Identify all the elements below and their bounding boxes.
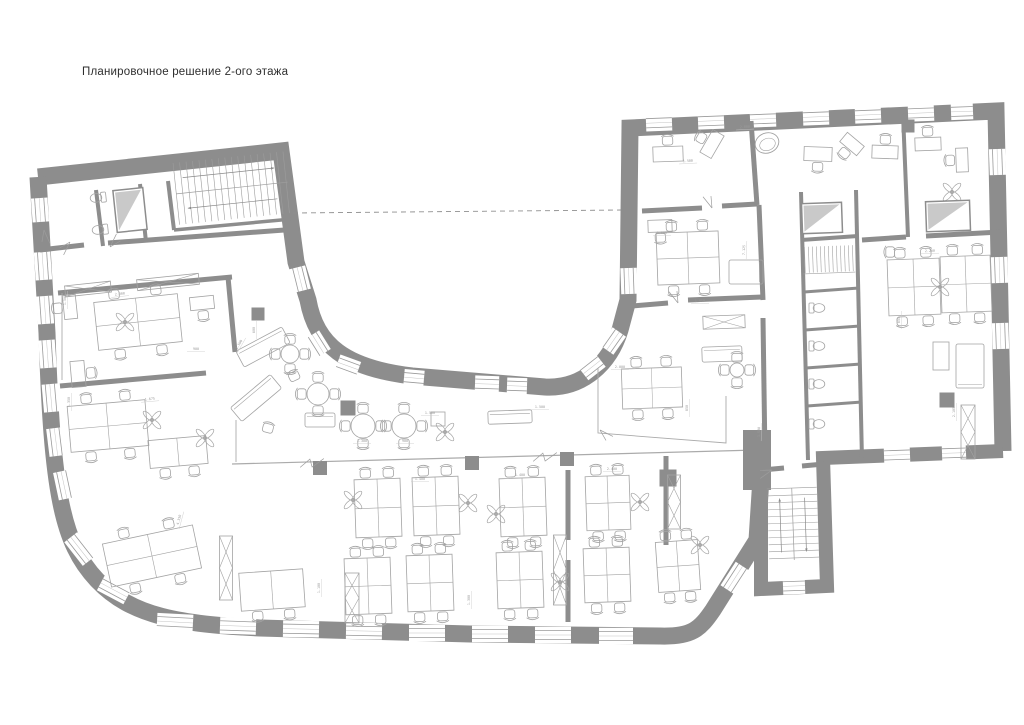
chair-symbol bbox=[269, 348, 280, 360]
chair-symbol bbox=[116, 526, 130, 539]
window-symbol bbox=[620, 268, 637, 295]
column-symbol bbox=[902, 120, 915, 133]
chair-symbol bbox=[161, 517, 175, 530]
chair-symbol bbox=[922, 316, 935, 327]
column-symbol bbox=[560, 452, 574, 466]
chair-symbol bbox=[613, 603, 626, 614]
chair-symbol bbox=[589, 464, 602, 475]
partition-wall bbox=[802, 464, 824, 466]
door-symbol bbox=[600, 426, 613, 440]
dimension-label: 1.500 bbox=[63, 295, 67, 305]
desk-symbol bbox=[189, 295, 215, 322]
site-boundary-layer bbox=[293, 210, 621, 213]
chair-symbol bbox=[503, 610, 516, 621]
pod2-symbol bbox=[239, 569, 306, 623]
chair-symbol bbox=[79, 392, 92, 404]
rect-symbol bbox=[933, 342, 949, 370]
chair-symbol bbox=[372, 545, 385, 556]
chair-symbol bbox=[442, 536, 455, 547]
glass-partition bbox=[598, 368, 726, 443]
chair-symbol bbox=[419, 537, 432, 548]
chair-symbol bbox=[745, 364, 756, 376]
partition-wall bbox=[801, 236, 858, 240]
stairv-symbol bbox=[767, 487, 819, 561]
window-symbol bbox=[992, 323, 1009, 350]
dimension-label: 1.350 bbox=[67, 397, 71, 407]
chair-symbol bbox=[339, 420, 350, 432]
pod4-symbol bbox=[406, 542, 455, 624]
window-symbol bbox=[855, 106, 882, 123]
rtable-symbol bbox=[269, 333, 310, 374]
chair-symbol bbox=[300, 348, 311, 360]
chair-symbol bbox=[698, 285, 711, 296]
pod4-symbol bbox=[92, 282, 183, 363]
window-symbol bbox=[46, 427, 66, 457]
partition-wall bbox=[926, 232, 1000, 236]
window-symbol bbox=[31, 197, 49, 222]
column-symbol bbox=[743, 430, 771, 490]
dimension-label: 1.300 bbox=[467, 595, 471, 605]
hatch-symbol bbox=[802, 245, 855, 274]
window-symbol bbox=[991, 257, 1008, 284]
drawing-title: Планировочное решение 2-ого этажа bbox=[82, 66, 288, 78]
chair-symbol bbox=[811, 162, 824, 173]
pod4-symbol bbox=[583, 535, 632, 615]
desk-symbol bbox=[914, 125, 941, 151]
window-symbol bbox=[599, 628, 633, 644]
window-symbol bbox=[157, 613, 194, 631]
mtable-symbol bbox=[621, 355, 683, 421]
plant-symbol bbox=[458, 493, 478, 513]
sofa-symbol bbox=[305, 413, 335, 427]
toilet-symbol bbox=[809, 341, 825, 351]
desk-symbol bbox=[803, 147, 832, 174]
dimension-label: 600 bbox=[252, 327, 256, 333]
sofa-symbol bbox=[488, 410, 532, 425]
site-boundary-dashed-line bbox=[293, 210, 621, 213]
wall-segment bbox=[761, 451, 1003, 589]
partition-wall bbox=[804, 288, 859, 292]
chair-symbol bbox=[731, 378, 743, 389]
dimension-label: 900 bbox=[402, 439, 408, 443]
chair-symbol bbox=[173, 573, 187, 586]
sofa-symbol bbox=[236, 327, 290, 367]
chair-symbol bbox=[611, 535, 624, 546]
chair-symbol bbox=[295, 388, 306, 400]
sofa-symbol bbox=[729, 260, 763, 284]
chair-symbol bbox=[661, 134, 674, 145]
chair-symbol bbox=[118, 389, 131, 401]
column-symbol bbox=[660, 470, 677, 487]
door-symbol bbox=[669, 291, 678, 304]
chair-symbol bbox=[662, 409, 675, 420]
chair-symbol bbox=[971, 243, 984, 254]
chair-symbol bbox=[973, 313, 986, 324]
pod4-symbol bbox=[496, 539, 545, 621]
window-symbol bbox=[803, 108, 830, 125]
plant-symbol bbox=[142, 410, 162, 430]
chair-symbol bbox=[312, 406, 324, 417]
chair-symbol bbox=[948, 314, 961, 325]
chair-symbol bbox=[921, 125, 934, 136]
dimension-label: 2.000 bbox=[115, 291, 126, 296]
chair-symbol bbox=[632, 410, 645, 421]
chair-symbol bbox=[283, 609, 296, 621]
dimension-label: 2.400 bbox=[607, 467, 617, 471]
column-symbol bbox=[313, 461, 327, 475]
window-symbol bbox=[283, 620, 319, 637]
plant-symbol bbox=[195, 428, 215, 448]
desk-symbol bbox=[832, 132, 864, 165]
column-symbol bbox=[252, 308, 265, 321]
chair-symbol bbox=[155, 344, 168, 356]
sofa-symbol bbox=[956, 344, 984, 388]
window-symbol bbox=[535, 627, 571, 643]
dimension-label: 850 bbox=[685, 405, 689, 411]
chair-symbol bbox=[417, 465, 430, 476]
chair-symbol bbox=[359, 467, 372, 478]
dimension-label: 1.500 bbox=[657, 231, 667, 235]
dimension-label: 2.280 bbox=[925, 249, 935, 253]
pod4-symbol bbox=[344, 545, 393, 627]
window-symbol bbox=[884, 446, 911, 463]
sofa-symbol bbox=[230, 374, 281, 421]
dimension-label: 2.000 bbox=[740, 125, 750, 130]
chair-symbol bbox=[944, 154, 955, 167]
pod4-symbol bbox=[654, 528, 701, 605]
partition-wall bbox=[60, 373, 206, 386]
toilet-symbol bbox=[809, 379, 825, 389]
dimension-label: 655 bbox=[897, 317, 901, 323]
chair-symbol bbox=[384, 538, 397, 549]
rtable-symbol bbox=[295, 371, 340, 416]
window-symbol bbox=[403, 369, 424, 387]
partition-wall bbox=[722, 204, 757, 206]
chair-symbol bbox=[330, 388, 341, 400]
chair-symbol bbox=[527, 465, 540, 476]
toilet-symbol bbox=[809, 419, 825, 429]
window-symbol bbox=[220, 617, 257, 635]
dimension-label: 1.500 bbox=[535, 405, 545, 409]
chair-symbol bbox=[85, 451, 98, 463]
desk-symbol bbox=[872, 133, 899, 159]
partition-wall bbox=[751, 121, 757, 205]
chair-symbol bbox=[434, 542, 447, 553]
xcab-symbol bbox=[220, 536, 233, 600]
chair-symbol bbox=[398, 402, 410, 413]
dimension-label: 7.125 bbox=[742, 245, 746, 255]
chair-symbol bbox=[286, 368, 302, 383]
partition-wall bbox=[805, 326, 860, 330]
pod4-symbol bbox=[100, 513, 204, 599]
dimension-label: 2.105 bbox=[952, 407, 956, 417]
chair-symbol bbox=[261, 421, 276, 435]
chair-symbol bbox=[590, 604, 603, 615]
xcab-symbol bbox=[554, 535, 567, 605]
bean-symbol bbox=[752, 129, 781, 156]
sofa-symbol bbox=[702, 346, 742, 362]
plant-symbol bbox=[343, 490, 363, 510]
chair-symbol bbox=[357, 402, 369, 413]
partition-wall bbox=[168, 181, 174, 230]
partition-wall bbox=[807, 402, 862, 406]
chair-symbol bbox=[188, 466, 201, 478]
window-symbol bbox=[951, 103, 974, 120]
dimension-label: 2.000 bbox=[615, 365, 625, 369]
shaft-symbol bbox=[113, 188, 147, 233]
plant-symbol bbox=[630, 492, 650, 512]
xcab-symbol bbox=[703, 315, 745, 329]
column-symbol bbox=[940, 393, 955, 408]
partition-wall bbox=[806, 364, 861, 368]
window-symbol bbox=[289, 265, 311, 292]
window-symbol bbox=[42, 383, 61, 412]
dimension-label: 1.500 bbox=[683, 159, 693, 164]
dimension-label: 900 bbox=[193, 347, 199, 351]
chair-symbol bbox=[879, 133, 892, 144]
chair-symbol bbox=[696, 219, 709, 230]
pod4-symbol bbox=[354, 466, 403, 550]
dimension-label: 1.400 bbox=[515, 473, 525, 477]
plant-symbol bbox=[690, 535, 710, 555]
chair-symbol bbox=[128, 582, 142, 595]
rtable-symbol bbox=[718, 351, 755, 388]
dimension-label: 1.500 bbox=[757, 427, 761, 437]
chair-symbol bbox=[349, 546, 362, 557]
chair-symbol bbox=[614, 531, 627, 542]
chair-symbol bbox=[261, 421, 276, 435]
partition-wall bbox=[862, 237, 906, 240]
column-symbol bbox=[465, 456, 479, 470]
chair-symbol bbox=[159, 468, 172, 480]
partition-wall bbox=[759, 205, 763, 300]
window-symbol bbox=[783, 577, 806, 594]
zdoor-symbol bbox=[533, 453, 557, 462]
pod2-symbol bbox=[148, 436, 209, 481]
window-symbol bbox=[989, 149, 1006, 176]
floorplan-drawing: 1.5002.0009001.3501.6751.5006001.3009001… bbox=[0, 0, 1024, 725]
pod4-symbol bbox=[66, 388, 150, 465]
dimension-label: 1.500 bbox=[425, 411, 435, 415]
partitions-layer bbox=[40, 114, 1000, 622]
chair-symbol bbox=[286, 368, 302, 383]
chair-symbol bbox=[86, 366, 98, 379]
window-symbol bbox=[38, 339, 56, 368]
chair-symbol bbox=[718, 364, 729, 376]
partition-wall bbox=[642, 208, 702, 211]
chair-symbol bbox=[382, 466, 395, 477]
window-symbol bbox=[698, 112, 725, 129]
plant-symbol bbox=[942, 182, 962, 202]
column-symbol bbox=[341, 401, 356, 416]
chair-symbol bbox=[123, 448, 136, 460]
pod4-symbol bbox=[940, 243, 993, 325]
shaft-symbol bbox=[925, 200, 970, 232]
shaft-symbol bbox=[801, 202, 842, 233]
chair-symbol bbox=[526, 609, 539, 620]
dimension-label: 4.350 bbox=[176, 514, 183, 525]
window-symbol bbox=[507, 377, 528, 394]
chair-symbol bbox=[684, 591, 697, 603]
chair-symbol bbox=[660, 355, 673, 366]
window-symbol bbox=[908, 104, 935, 121]
dimension-label: 1.675 bbox=[145, 397, 156, 402]
chair-symbol bbox=[893, 247, 906, 258]
chair-symbol bbox=[197, 310, 210, 322]
chair-symbol bbox=[667, 286, 680, 297]
pod4-symbol bbox=[585, 463, 632, 543]
chair-symbol bbox=[836, 146, 852, 162]
chair-symbol bbox=[440, 464, 453, 475]
dimension-label: 1.100 bbox=[317, 583, 321, 593]
chair-symbol bbox=[884, 246, 895, 258]
chair-symbol bbox=[884, 246, 895, 258]
desk-symbol bbox=[652, 134, 683, 162]
chair-symbol bbox=[413, 613, 426, 624]
floor-plan-page: 1.5002.0009001.3501.6751.5006001.3009001… bbox=[0, 0, 1024, 725]
dimension-label: 1.950 bbox=[695, 299, 705, 303]
chair-symbol bbox=[114, 349, 127, 361]
chair-symbol bbox=[630, 356, 643, 367]
chair-symbol bbox=[665, 220, 678, 231]
window-symbol bbox=[475, 375, 500, 392]
chair-symbol bbox=[312, 371, 324, 382]
window-symbol bbox=[34, 251, 52, 280]
window-symbol bbox=[646, 114, 673, 131]
chair-symbol bbox=[436, 612, 449, 623]
dimension-label: 1.400 bbox=[415, 477, 425, 481]
dimension-label: 1.300 bbox=[357, 439, 367, 443]
toilet-symbol bbox=[809, 303, 825, 313]
partition-wall bbox=[632, 303, 668, 306]
chair-symbol bbox=[417, 420, 428, 432]
chair-symbol bbox=[663, 593, 676, 605]
plant-symbol bbox=[486, 504, 506, 524]
chair-symbol bbox=[411, 543, 424, 554]
partition-wall bbox=[228, 277, 235, 352]
window-symbol bbox=[409, 625, 445, 641]
door-symbol bbox=[703, 196, 712, 209]
plant-symbol bbox=[115, 312, 135, 332]
desk-symbol bbox=[943, 148, 968, 173]
pod4-symbol bbox=[887, 246, 942, 328]
window-symbol bbox=[472, 626, 508, 642]
chair-symbol bbox=[946, 244, 959, 255]
